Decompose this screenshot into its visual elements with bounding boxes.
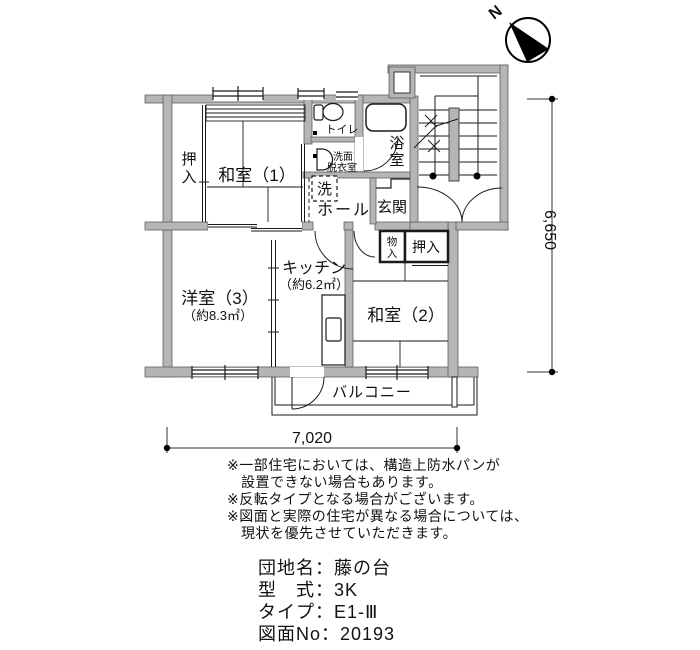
info-block: 団地名：藤の台 型 式：3K タイプ：E1-Ⅲ 図面No：20193 <box>258 557 395 645</box>
label-oshiire1-2: 入 <box>181 169 196 186</box>
label-monoire-2: 入 <box>387 248 398 260</box>
note-line: 現状を優先させていただきます。 <box>227 525 529 542</box>
kitchen-counter-icon <box>322 295 345 365</box>
genkan-step <box>376 179 410 188</box>
note-line: ※反転タイプとなる場合がございます。 <box>227 491 529 508</box>
north-label: N <box>486 3 506 24</box>
info-danchi-name: 団地名：藤の台 <box>258 557 395 579</box>
info-plan-type: タイプ：E1-Ⅲ <box>258 601 395 623</box>
stairs <box>414 76 497 181</box>
dim-bottom: 7,020 <box>292 430 332 447</box>
fixtures <box>312 104 448 366</box>
label-senmen-1: 洗面 <box>333 151 353 163</box>
label-washitsu2: 和室（2） <box>367 306 444 325</box>
dim-right: 6,650 <box>541 210 558 250</box>
label-yoshitsu3-area: （約8.3㎡） <box>183 308 253 323</box>
label-laundry: 洗 <box>317 181 332 198</box>
note-line: ※一部住宅においては、構造上防水パンが <box>227 457 529 474</box>
label-washitsu1: 和室（1） <box>218 166 295 185</box>
label-genkan: 玄関 <box>377 199 407 216</box>
info-drawing-no: 図面No：20193 <box>258 623 395 645</box>
label-oshiire1-1: 押 <box>181 151 196 168</box>
pipe-space-box <box>389 67 415 98</box>
floor-plan-drawing: N 7,020 6,650 押 入 和室（1） トイレ 洗面 脱衣室 洗 ホール… <box>0 0 700 460</box>
north-arrow: N <box>486 3 550 62</box>
label-hall: ホール <box>317 202 371 219</box>
label-toilet: トイレ <box>326 124 359 136</box>
note-line: 設置できない場合もあります。 <box>227 474 529 491</box>
label-kitchen: キッチン <box>282 260 346 277</box>
label-balcony: バルコニー <box>332 384 412 401</box>
bathtub-icon <box>366 104 406 131</box>
floor-plan-page: N 7,020 6,650 押 入 和室（1） トイレ 洗面 脱衣室 洗 ホール… <box>0 0 700 650</box>
label-bath-2: 室 <box>389 152 404 169</box>
label-monoire-1: 物 <box>387 235 398 248</box>
info-layout-type: 型 式：3K <box>258 579 395 601</box>
notes-block: ※一部住宅においては、構造上防水パンが 設置できない場合もあります。 ※反転タイ… <box>227 457 529 542</box>
note-line: ※図面と実際の住宅が異なる場合については、 <box>227 508 529 525</box>
toilet-icon <box>314 104 343 121</box>
label-oshiire2: 押入 <box>412 239 440 255</box>
label-bath-1: 浴 <box>389 135 404 152</box>
label-kitchen-area: （約6.2㎡） <box>279 277 349 292</box>
label-yoshitsu3: 洋室（3） <box>181 289 258 308</box>
label-senmen-2: 脱衣室 <box>327 161 357 174</box>
